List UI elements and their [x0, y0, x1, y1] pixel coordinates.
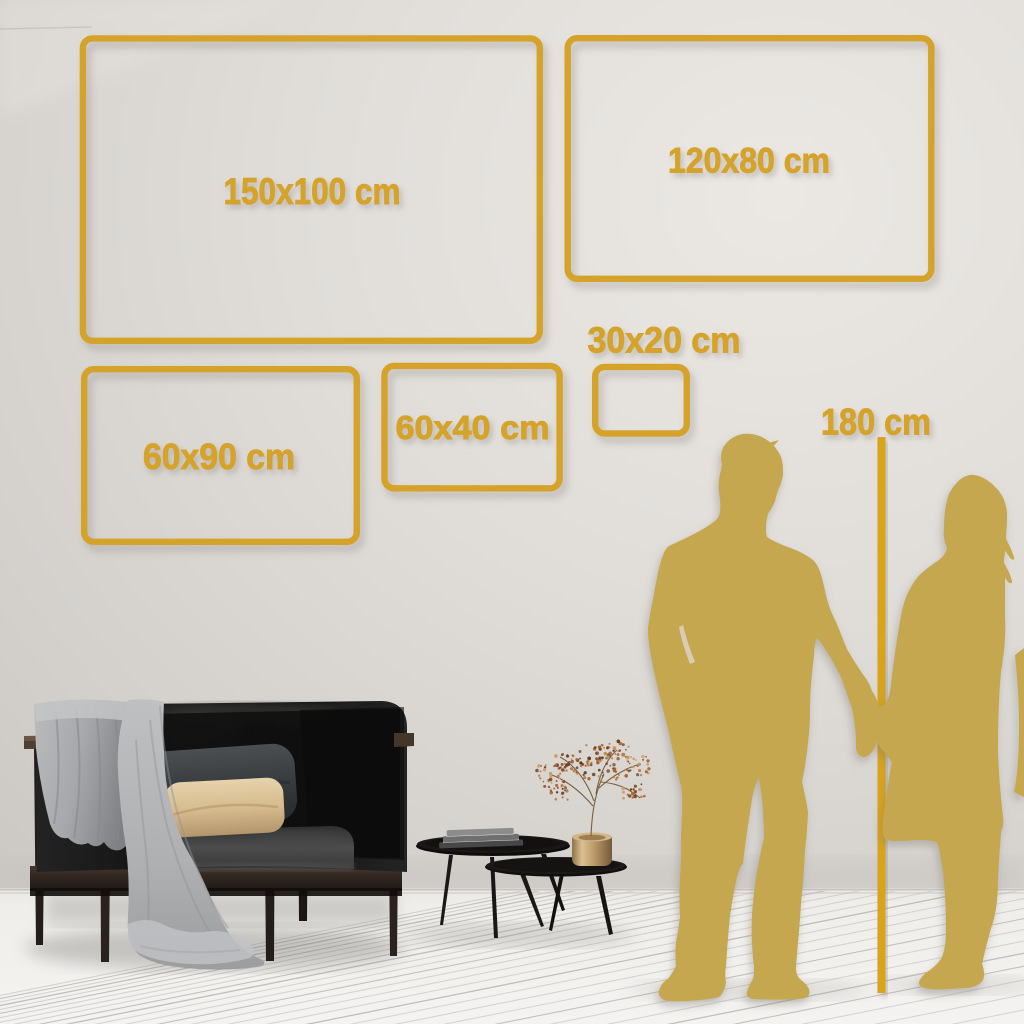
- svg-text:60x40 cm: 60x40 cm: [396, 409, 550, 446]
- svg-text:150x100 cm: 150x100 cm: [224, 171, 401, 212]
- svg-text:180 cm: 180 cm: [821, 401, 931, 443]
- svg-text:60x90 cm: 60x90 cm: [143, 436, 295, 477]
- svg-text:30x20 cm: 30x20 cm: [588, 320, 741, 361]
- svg-text:120x80 cm: 120x80 cm: [668, 142, 830, 181]
